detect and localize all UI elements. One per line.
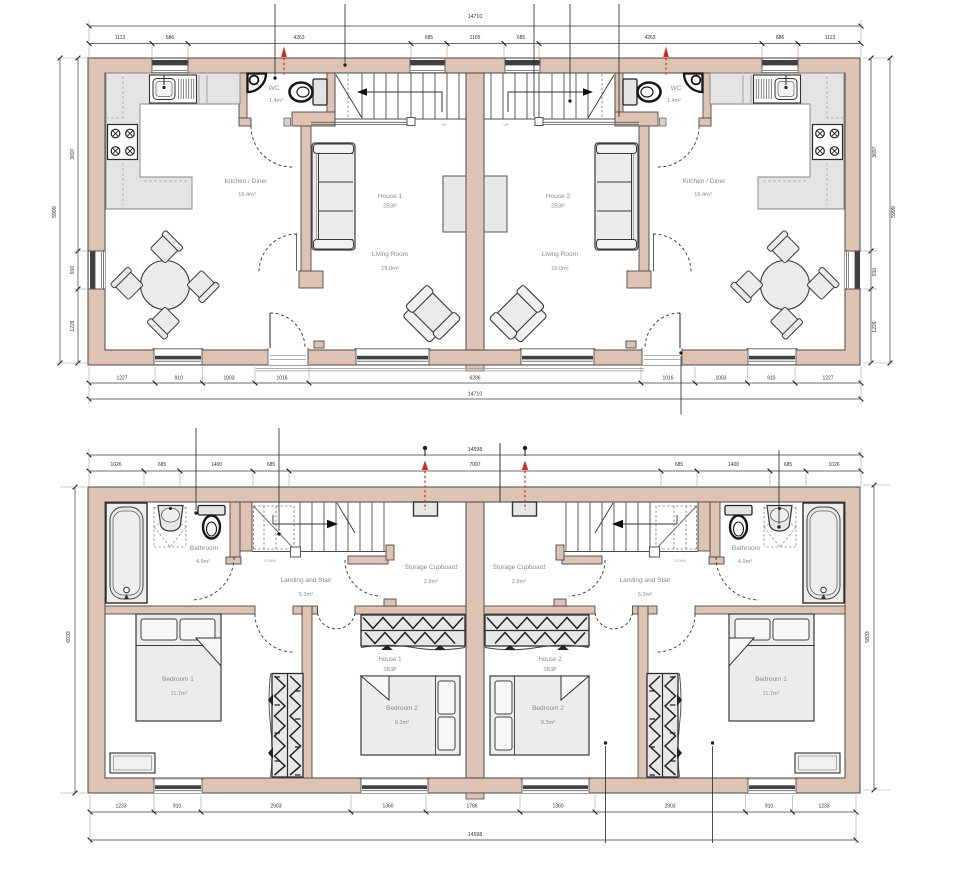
svg-text:14598: 14598 [468, 447, 483, 453]
svg-text:685: 685 [267, 462, 276, 468]
svg-text:2903: 2903 [664, 804, 675, 810]
svg-text:Bedroom 2: Bedroom 2 [532, 705, 564, 712]
svg-text:House 1: House 1 [378, 656, 402, 663]
svg-text:House 2: House 2 [538, 656, 562, 663]
svg-text:15.0m²: 15.0m² [551, 266, 569, 272]
svg-text:1360: 1360 [382, 804, 393, 810]
svg-text:1105: 1105 [470, 35, 481, 41]
svg-text:6286: 6286 [469, 376, 480, 382]
svg-text:15.0m²: 15.0m² [381, 266, 399, 272]
svg-text:1.4m²: 1.4m² [269, 98, 283, 104]
svg-text:Living Room: Living Room [372, 251, 408, 258]
svg-text:3697: 3697 [70, 148, 76, 159]
svg-text:685: 685 [158, 462, 167, 468]
svg-text:7007: 7007 [469, 462, 480, 468]
svg-text:6033: 6033 [66, 631, 72, 643]
svg-text:14598: 14598 [468, 832, 483, 838]
svg-text:685: 685 [517, 35, 526, 41]
svg-text:4263: 4263 [293, 35, 304, 41]
svg-text:9.3m²: 9.3m² [395, 720, 409, 726]
svg-text:1026: 1026 [828, 462, 839, 468]
svg-text:Landing and Stair: Landing and Stair [620, 577, 672, 584]
svg-text:Landing and Stair: Landing and Stair [281, 577, 333, 584]
svg-text:1233: 1233 [818, 804, 829, 810]
svg-text:1233: 1233 [115, 804, 126, 810]
svg-text:686: 686 [166, 35, 175, 41]
svg-text:11.7m²: 11.7m² [763, 691, 780, 697]
svg-text:Bathroom: Bathroom [732, 545, 760, 552]
svg-text:1113: 1113 [115, 35, 126, 41]
svg-text:910: 910 [767, 376, 776, 382]
svg-text:1003: 1003 [223, 376, 234, 382]
svg-text:DOWN: DOWN [674, 559, 686, 563]
svg-text:2903: 2903 [270, 804, 281, 810]
svg-text:1113: 1113 [825, 35, 836, 41]
svg-text:685: 685 [425, 35, 434, 41]
svg-text:1226: 1226 [70, 320, 76, 331]
svg-text:Kitchen / Diner: Kitchen / Diner [683, 178, 726, 185]
svg-text:3697: 3697 [872, 146, 878, 157]
svg-text:2B3P: 2B3P [383, 667, 397, 673]
svg-text:WC: WC [671, 85, 682, 92]
svg-text:1016: 1016 [276, 376, 287, 382]
svg-text:House 1: House 1 [378, 193, 403, 200]
svg-text:5833: 5833 [865, 631, 871, 643]
svg-text:910: 910 [765, 804, 774, 810]
svg-text:Bedroom 1: Bedroom 1 [755, 676, 787, 683]
svg-text:4263: 4263 [644, 35, 655, 41]
svg-text:685: 685 [675, 462, 684, 468]
svg-text:2.8m²: 2.8m² [512, 579, 526, 585]
svg-text:Living Room: Living Room [542, 251, 578, 258]
svg-text:9.3m²: 9.3m² [541, 720, 555, 726]
svg-text:1400: 1400 [211, 462, 222, 468]
svg-text:4.9m²: 4.9m² [738, 559, 752, 565]
svg-text:910: 910 [173, 804, 182, 810]
svg-text:5.3m²: 5.3m² [299, 592, 313, 598]
svg-text:686: 686 [776, 35, 785, 41]
svg-text:16.4m²: 16.4m² [238, 192, 256, 198]
svg-text:1026: 1026 [110, 462, 121, 468]
svg-text:Bathroom: Bathroom [190, 545, 218, 552]
svg-text:1226: 1226 [872, 321, 878, 332]
svg-text:Storage Cupboard: Storage Cupboard [404, 564, 458, 571]
svg-text:2B3P: 2B3P [543, 667, 557, 673]
svg-text:1400: 1400 [728, 462, 739, 468]
svg-text:910: 910 [70, 266, 76, 275]
svg-text:1.4m²: 1.4m² [667, 98, 681, 104]
svg-text:685: 685 [784, 462, 793, 468]
svg-text:House 2: House 2 [546, 193, 571, 200]
svg-text:2B3P: 2B3P [383, 204, 397, 210]
svg-text:4.9m²: 4.9m² [196, 559, 210, 565]
svg-text:910: 910 [872, 268, 878, 277]
svg-text:5999: 5999 [52, 206, 58, 218]
svg-text:Kitchen / Diner: Kitchen / Diner [225, 178, 268, 185]
svg-text:1016: 1016 [662, 376, 673, 382]
svg-text:14710: 14710 [468, 14, 483, 20]
svg-text:1227: 1227 [822, 376, 833, 382]
svg-text:Bedroom 2: Bedroom 2 [386, 705, 418, 712]
svg-text:Storage Cupboard: Storage Cupboard [492, 564, 546, 571]
svg-text:Bedroom 1: Bedroom 1 [162, 676, 194, 683]
svg-text:1003: 1003 [715, 376, 726, 382]
svg-text:WC: WC [269, 85, 280, 92]
svg-text:1360: 1360 [552, 804, 563, 810]
svg-text:11.7m²: 11.7m² [171, 691, 188, 697]
svg-text:5999: 5999 [891, 206, 897, 218]
svg-text:UP: UP [504, 123, 510, 127]
svg-text:16.4m²: 16.4m² [694, 192, 712, 198]
svg-text:14710: 14710 [468, 392, 483, 398]
svg-text:5.3m²: 5.3m² [638, 592, 652, 598]
svg-text:2B3P: 2B3P [551, 204, 565, 210]
svg-text:910: 910 [175, 376, 184, 382]
svg-text:DOWN: DOWN [264, 559, 276, 563]
svg-text:1227: 1227 [116, 376, 127, 382]
svg-text:2.8m²: 2.8m² [424, 579, 438, 585]
svg-text:UP: UP [442, 123, 448, 127]
svg-text:1786: 1786 [466, 804, 477, 810]
